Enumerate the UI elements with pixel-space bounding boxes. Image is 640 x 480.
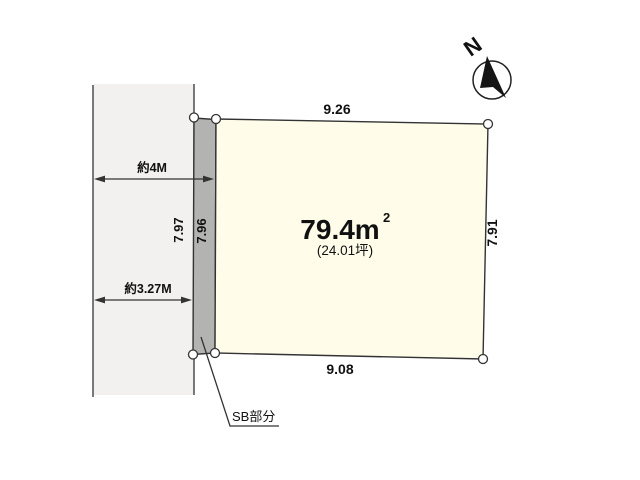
road-total-width-label: 約4M [137, 160, 167, 175]
plot-drawing: 約4M 約3.27M 9.26 9.08 7.91 7.97 7.96 79.4… [0, 0, 640, 480]
dim-setback-outer-label: 7.97 [171, 217, 186, 242]
vertex-marker [479, 355, 488, 364]
compass-north-label: N [459, 32, 486, 62]
setback-label: SB部分 [232, 409, 275, 424]
dim-top-label: 9.26 [323, 101, 350, 117]
vertex-marker [211, 349, 220, 358]
vertex-marker [190, 113, 199, 122]
land-plot-diagram: 約4M 約3.27M 9.26 9.08 7.91 7.97 7.96 79.4… [0, 0, 640, 480]
area-value-label: 79.4m [300, 214, 379, 245]
area-superscript: 2 [383, 210, 390, 225]
road-current-width-label: 約3.27M [124, 281, 171, 296]
dim-right-label: 7.91 [484, 219, 500, 246]
vertex-marker [189, 350, 198, 359]
dim-setback-inner-label: 7.96 [194, 218, 209, 243]
area-tsubo-label: (24.01坪) [317, 243, 373, 258]
compass: N [459, 32, 511, 99]
vertex-marker [484, 120, 493, 129]
vertex-marker [212, 115, 221, 124]
dim-bottom-label: 9.08 [326, 361, 353, 377]
